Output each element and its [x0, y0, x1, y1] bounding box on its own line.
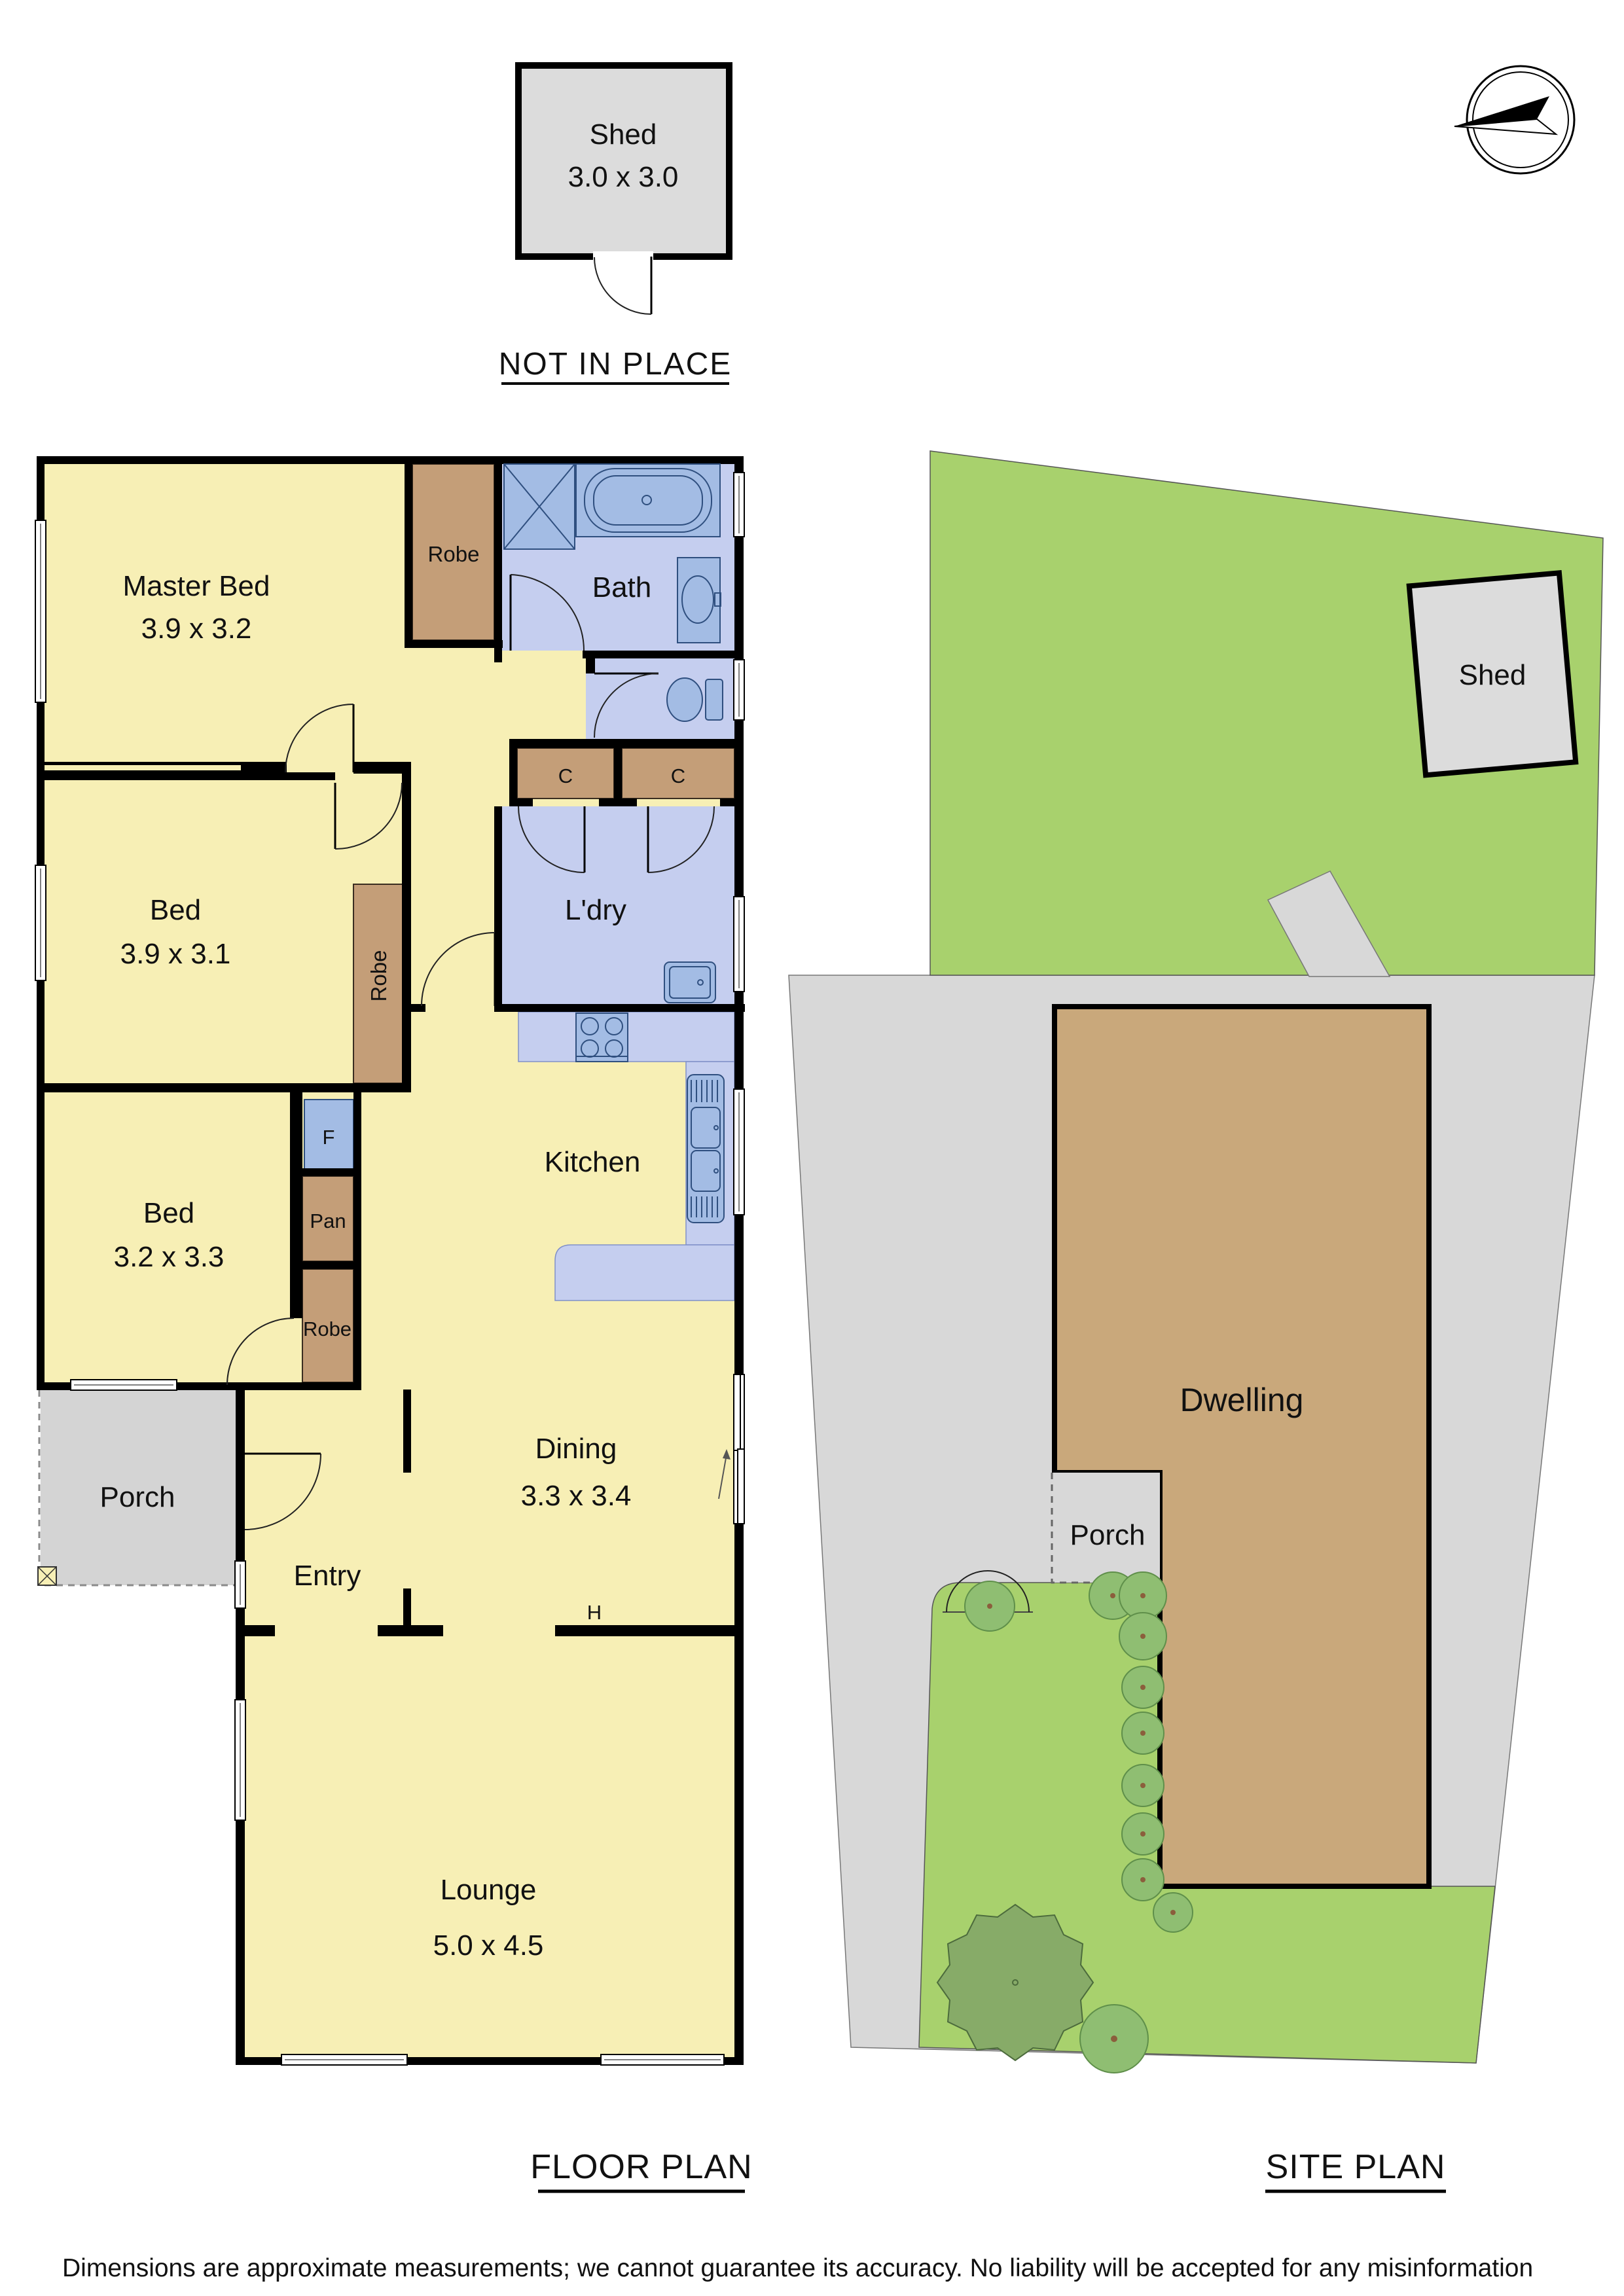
- toilet: [667, 678, 723, 721]
- window: [235, 1561, 245, 1608]
- label-heater: H: [587, 1601, 602, 1624]
- vanity-basin: [677, 558, 721, 643]
- room-label-bed2: Bed: [150, 894, 201, 926]
- floor-plan-title: FLOOR PLAN: [530, 2148, 752, 2186]
- room-label-bath: Bath: [592, 571, 652, 603]
- stove: [576, 1013, 628, 1062]
- kitchen-sink: [687, 1075, 724, 1223]
- shower: [504, 464, 575, 549]
- label-cupboard-2: C: [671, 764, 685, 787]
- detached-shed: Shed 3.0 x 3.0 NOT IN PLACE: [499, 65, 732, 384]
- room-label-lounge: Lounge: [441, 1874, 537, 1906]
- window: [734, 897, 744, 992]
- label-robe-bed2: Robe: [367, 950, 391, 1002]
- detached-shed-label: Shed: [590, 118, 657, 151]
- label-robe-bed3: Robe: [303, 1318, 352, 1340]
- room-label-dining: Dining: [535, 1433, 617, 1465]
- site-plan: Shed Dwelling Porch: [789, 451, 1603, 2073]
- kitchen-counter-bottom: [555, 1245, 734, 1300]
- detached-shed-dims: 3.0 x 3.0: [568, 161, 679, 193]
- room-label-laundry: L'dry: [565, 894, 626, 926]
- window: [35, 520, 46, 702]
- disclaimer-text: Dimensions are approximate measurements;…: [62, 2254, 1533, 2282]
- label-fridge: F: [323, 1126, 335, 1149]
- floorplan-page: Shed 3.0 x 3.0 NOT IN PLACE: [0, 0, 1624, 2296]
- floor-plan: Master Bed 3.9 x 3.2 Robe Bath C C L'dry…: [35, 456, 745, 2065]
- window: [35, 865, 46, 980]
- porch-post: [38, 1567, 56, 1585]
- site-porch-label: Porch: [1070, 1519, 1146, 1551]
- window: [734, 1089, 744, 1215]
- site-plan-title: SITE PLAN: [1266, 2148, 1446, 2186]
- label-robe-master: Robe: [428, 542, 480, 566]
- not-in-place-label: NOT IN PLACE: [499, 347, 732, 382]
- label-cupboard-1: C: [558, 764, 573, 787]
- window: [235, 1700, 245, 1820]
- laundry-trough: [664, 962, 715, 1003]
- detached-shed-door-opening: [593, 251, 653, 260]
- room-label-entry: Entry: [294, 1560, 361, 1592]
- room-dims-bed3: 3.2 x 3.3: [114, 1241, 225, 1273]
- window: [734, 473, 744, 537]
- window: [734, 660, 744, 720]
- room-dims-bed2: 3.9 x 3.1: [120, 938, 231, 970]
- room-dims-dining: 3.3 x 3.4: [521, 1480, 632, 1512]
- detached-shed-door-arc: [594, 257, 651, 314]
- label-pantry: Pan: [310, 1210, 346, 1232]
- room-dims-lounge: 5.0 x 4.5: [433, 1929, 544, 1962]
- room-label-master-bed: Master Bed: [123, 570, 270, 602]
- room-label-kitchen: Kitchen: [545, 1146, 641, 1178]
- sliding-door: [734, 1374, 744, 1524]
- bathtub: [576, 464, 720, 537]
- site-shed-label: Shed: [1459, 659, 1526, 691]
- room-label-porch: Porch: [100, 1481, 175, 1513]
- window: [601, 2054, 724, 2065]
- window: [281, 2054, 407, 2065]
- room-label-bed3: Bed: [143, 1197, 194, 1229]
- room-dims-master-bed: 3.9 x 3.2: [141, 613, 252, 645]
- dwelling-label: Dwelling: [1180, 1382, 1304, 1418]
- window: [71, 1380, 177, 1390]
- north-arrow-icon: [1454, 66, 1574, 173]
